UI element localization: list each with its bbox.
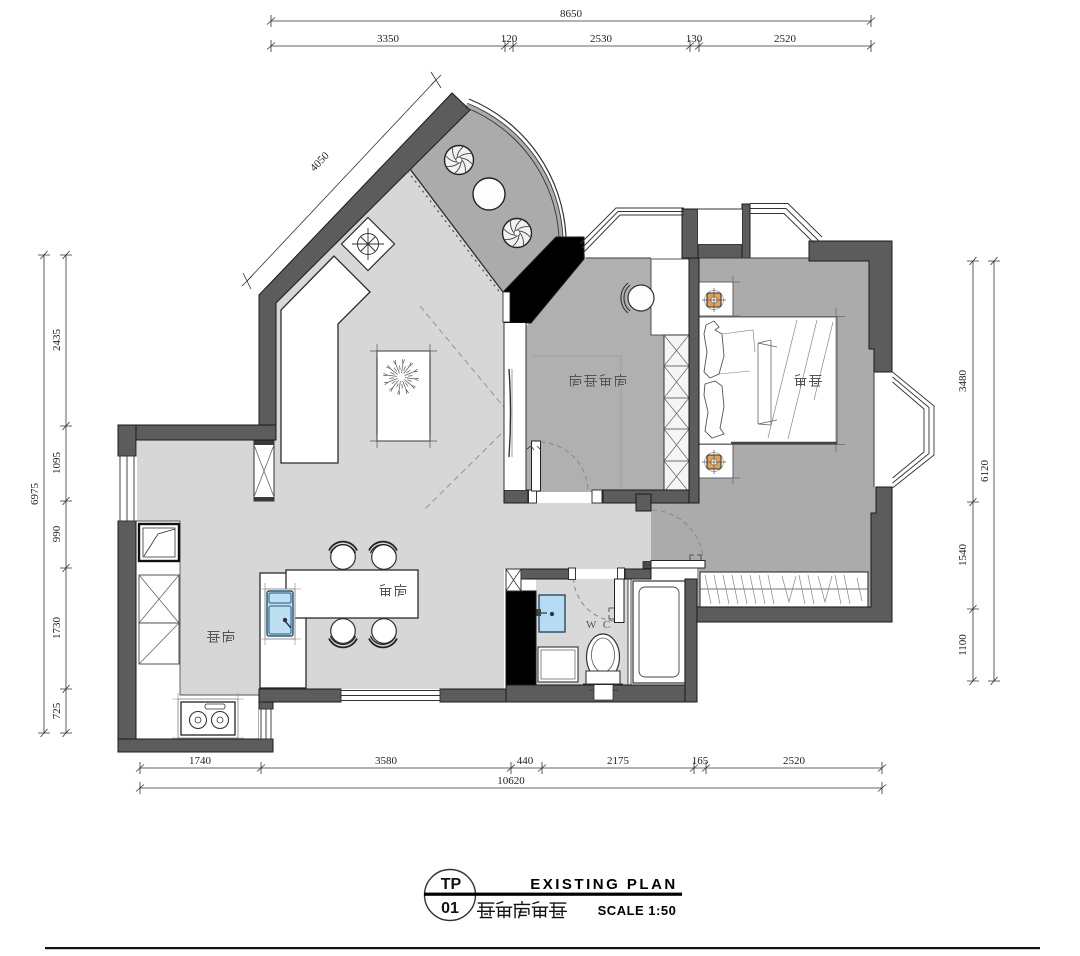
- svg-text:1100: 1100: [957, 634, 969, 656]
- svg-text:EXISTING PLAN: EXISTING PLAN: [530, 876, 678, 893]
- svg-text:8650: 8650: [560, 8, 583, 20]
- svg-text:1740: 1740: [189, 755, 212, 767]
- svg-text:W C: W C: [586, 619, 612, 631]
- svg-text:2520: 2520: [774, 33, 797, 45]
- svg-text:TP: TP: [441, 876, 462, 893]
- svg-text:440: 440: [517, 755, 534, 767]
- svg-text:2435: 2435: [51, 329, 63, 352]
- svg-text:2530: 2530: [590, 33, 613, 45]
- svg-text:2175: 2175: [607, 755, 630, 767]
- svg-text:1095: 1095: [51, 452, 63, 475]
- svg-text:725: 725: [51, 702, 63, 719]
- svg-text:120: 120: [501, 33, 518, 45]
- svg-text:01: 01: [441, 900, 459, 917]
- svg-text:3350: 3350: [377, 33, 400, 45]
- svg-text:165: 165: [692, 755, 709, 767]
- svg-text:3580: 3580: [375, 755, 398, 767]
- svg-text:4050: 4050: [308, 149, 332, 174]
- svg-text:2520: 2520: [783, 755, 806, 767]
- svg-text:130: 130: [686, 33, 703, 45]
- svg-text:6975: 6975: [29, 483, 41, 506]
- svg-text:1730: 1730: [51, 617, 63, 640]
- svg-text:10620: 10620: [497, 775, 525, 787]
- svg-text:6120: 6120: [979, 460, 991, 483]
- svg-text:SCALE 1:50: SCALE 1:50: [598, 903, 677, 918]
- svg-text:3480: 3480: [957, 370, 969, 393]
- svg-text:1540: 1540: [957, 544, 969, 567]
- svg-text:990: 990: [51, 525, 63, 542]
